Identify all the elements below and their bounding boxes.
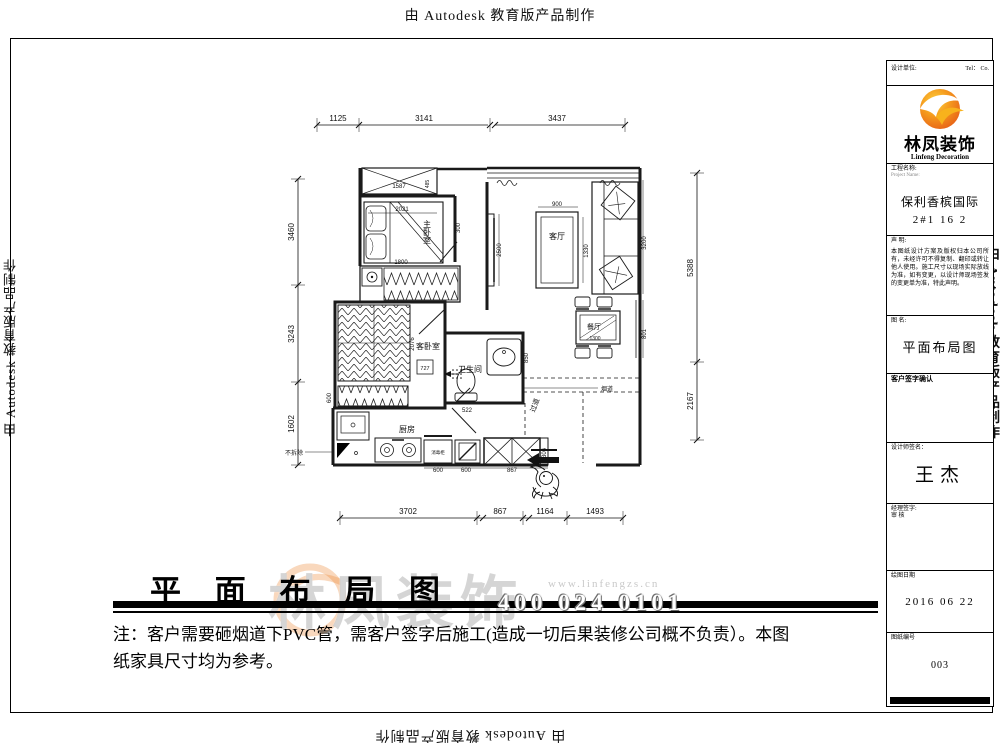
note-line-2: 纸家具尺寸均为参考。 [113, 648, 891, 675]
dim-dining-table: 1300 [589, 336, 600, 342]
titleblock-review[interactable]: 经理签字: 审 核 [887, 504, 993, 571]
dim-bottom-1: 3702 [399, 507, 417, 516]
sheet-title: 平 面 布 局 图 [150, 566, 453, 611]
header-left: 设计单位: [891, 63, 917, 83]
phoenix-stamp [531, 466, 559, 499]
dim-tv-wall: 2500 [497, 243, 503, 257]
annotation-no-demolish: 不拆除 [285, 449, 303, 457]
drawing-name-label: 图 名: [891, 318, 989, 325]
room-label-dining: 餐厅 [587, 322, 601, 331]
dim-top-3: 3437 [548, 114, 566, 123]
room-label-master: 主卧室 [423, 219, 432, 244]
dim-right-2: 2167 [686, 392, 695, 410]
titleblock-number: 图纸编号 003 [887, 633, 993, 706]
dim-guest-door: 727 [420, 366, 429, 372]
dim-bay: 1587 [392, 184, 406, 190]
title-underline-thin [113, 611, 878, 613]
cad-sheet: { "banner": {"text": "由 Autodesk 教育版产品制作… [0, 0, 1000, 750]
dim-bottom-4: 1493 [586, 507, 604, 516]
dim-k1: 600 [433, 468, 444, 474]
titleblock-client-sign[interactable]: 客户签字确认 [887, 374, 993, 443]
annotation-hall: 过道 [528, 397, 541, 413]
titleblock-header: 设计单位: Tel： Co. [887, 61, 993, 86]
designer-name: 王杰 [891, 460, 989, 487]
statement-label: 声 明: [891, 238, 989, 245]
dim-k3: 867 [507, 468, 518, 474]
linfeng-logo-icon [912, 87, 968, 131]
statement-text: 本图纸设计方案及版权归本公司所有，未经许可不得复制、翻印或转让他人使用。施工尺寸… [891, 248, 989, 288]
room-label-living: 客厅 [549, 231, 565, 241]
dim-bottom-3: 1164 [536, 507, 554, 516]
dim-k2: 600 [461, 468, 472, 474]
header-right: Tel： Co. [965, 63, 989, 83]
dim-table-d: 1330 [584, 244, 590, 258]
titleblock-drawing-name: 图 名: 平面布局图 [887, 316, 993, 374]
project-unit: 2#1 16 2 [891, 214, 989, 226]
watermark-url: www.linfengzs.cn [548, 578, 659, 590]
review-label-2: 审 核 [891, 513, 989, 520]
dim-guest-depth: 2076 [410, 337, 416, 351]
date-value: 2016 06 22 [891, 596, 989, 608]
date-label: 绘图日期 [891, 573, 989, 580]
review-label: 经理签字: [891, 506, 989, 513]
titleblock-project: 工程名称: Project Name: 保利香槟国际 2#1 16 2 [887, 164, 993, 236]
dim-toilet: 522 [462, 408, 473, 414]
dim-top-2: 3141 [415, 114, 433, 123]
title-block: 设计单位: Tel： Co. 林凤装饰 Linfeng Decoration 工… [886, 60, 994, 707]
project-name: 保利香槟国际 [891, 193, 989, 210]
room-label-bath: 卫生间 [458, 364, 482, 374]
number-label: 图纸编号 [891, 635, 989, 642]
drawing-name: 平面布局图 [891, 337, 989, 356]
annotation-cabinet: 消毒柜 [431, 449, 445, 456]
titleblock-statement: 声 明: 本图纸设计方案及版权归本公司所有，未经许可不得复制、翻印或转让他人使用… [887, 236, 993, 316]
dim-wardrobe: 1800 [394, 260, 408, 266]
designer-label: 设计师签名： [891, 445, 989, 452]
watermark-phone: 400 024 0101 [498, 590, 685, 616]
dim-top-1: 1125 [329, 114, 347, 123]
room-label-kitchen: 厨房 [399, 424, 415, 434]
walls [305, 168, 640, 499]
titleblock-date: 绘图日期 2016 06 22 [887, 571, 993, 633]
brand-name-en: Linfeng Decoration [891, 153, 989, 161]
titleblock-designer: 设计师签名： 王杰 [887, 443, 993, 504]
dim-bed: 2021 [395, 207, 409, 213]
dim-right-1: 5388 [686, 259, 695, 277]
brand-name: 林凤装饰 [891, 136, 989, 153]
dim-guest-wardrobe: 600 [327, 392, 333, 403]
dim-left-3: 1602 [287, 415, 296, 433]
room-label-guest: 客卧室 [416, 341, 440, 351]
dim-k4: 306 [542, 447, 548, 458]
dim-bay-side: 485 [425, 180, 431, 189]
titleblock-bottom-bar [890, 697, 990, 704]
number-value: 003 [891, 660, 989, 671]
note-line-1: 注：客户需要砸烟道下PVC管，需客户签字后施工(造成一切后果装修公司概不负责）。… [113, 621, 891, 648]
dim-left-1: 3460 [287, 223, 296, 241]
dim-bed-side: 300 [456, 222, 462, 233]
client-sign-label: 客户签字确认 [891, 376, 989, 383]
note-text: 注：客户需要砸烟道下PVC管，需客户签字后施工(造成一切后果装修公司概不负责）。… [113, 621, 891, 675]
dim-basin: 850 [524, 352, 530, 363]
project-label: 工程名称: [891, 166, 989, 173]
annotation-flue: 烟道 [601, 385, 613, 393]
dim-bottom-2: 867 [493, 507, 507, 516]
project-sublabel: Project Name: [891, 173, 989, 179]
dim-left-2: 3243 [287, 325, 296, 343]
titleblock-logo-section: 林凤装饰 Linfeng Decoration [887, 86, 993, 164]
